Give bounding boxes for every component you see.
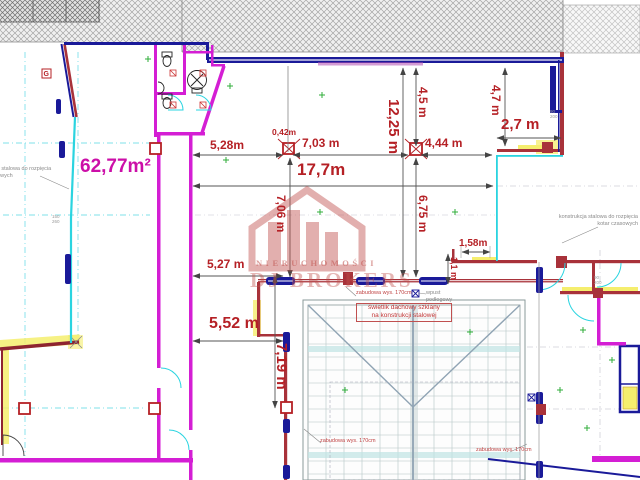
- dim-4-44: 4,44 m: [425, 137, 462, 149]
- zabudowa-note-left: zabudowa wys. 170cm: [320, 439, 376, 445]
- dim-17-7: 17,7m: [297, 161, 345, 178]
- dim-7-06: 7,06 m: [275, 195, 287, 232]
- window-size-mark: 150 260: [52, 215, 60, 225]
- dim-4-5: 4,5 m: [417, 87, 429, 118]
- hatch-band: [0, 0, 640, 53]
- dim-1-1: 1,1 m: [449, 257, 458, 280]
- dim-1-58: 1,58m: [459, 239, 487, 249]
- plan-drawing: [0, 0, 640, 480]
- dim-4-7: 4,7 m: [490, 85, 502, 116]
- dim-2-7: 2,7 m: [501, 117, 539, 132]
- dim-6-75: 6,75 m: [417, 195, 429, 232]
- dim-0-42: 0,42m: [272, 128, 296, 137]
- area-label: 62,77m²: [80, 157, 151, 176]
- door-size-mark-1: 90 200: [550, 110, 558, 120]
- watermark-text-nieruchomosci: NIERUCHOMOŚCI: [256, 258, 377, 268]
- floor-drain-note: wpust podłogowy: [426, 290, 452, 304]
- zabudowa-note-right: zabudowa wys. 170cm: [476, 448, 532, 454]
- steel-structure-note-left: konstrukcja stalowa do rozpięcia kotar c…: [0, 166, 51, 180]
- dim-7-03: 7,03 m: [302, 137, 339, 149]
- skylight-note-line2: na konstrukcji stalowej: [371, 312, 436, 319]
- dim-7-19: 7,19 m: [274, 343, 289, 390]
- dim-12-25: 12,25 m: [386, 99, 401, 154]
- dim-5-52: 5,52 m: [209, 316, 259, 332]
- watermark-text-brand: DJ BROKERS: [250, 268, 414, 293]
- watermark-logo: [252, 190, 362, 268]
- wall-spec-text-strip: [318, 62, 423, 66]
- dim-5-27: 5,27 m: [207, 258, 244, 270]
- skylight-note: świetlik dachowy szklany na konstrukcji …: [356, 303, 452, 322]
- door-size-mark-2: 90 200: [594, 276, 602, 286]
- steel-structure-note-right: konstrukcja stalowa do rozpięcia kotar c…: [546, 214, 638, 228]
- skylight-note-line1: świetlik dachowy szklany: [368, 304, 440, 311]
- dim-5-28: 5,28m: [210, 139, 244, 151]
- sanitary-fixtures: [158, 52, 207, 109]
- floor-plan-canvas: 62,77m² 5,28m 0,42m 7,03 m 4,44 m 2,7 m …: [0, 0, 640, 480]
- gas-meter-mark: G: [44, 71, 49, 78]
